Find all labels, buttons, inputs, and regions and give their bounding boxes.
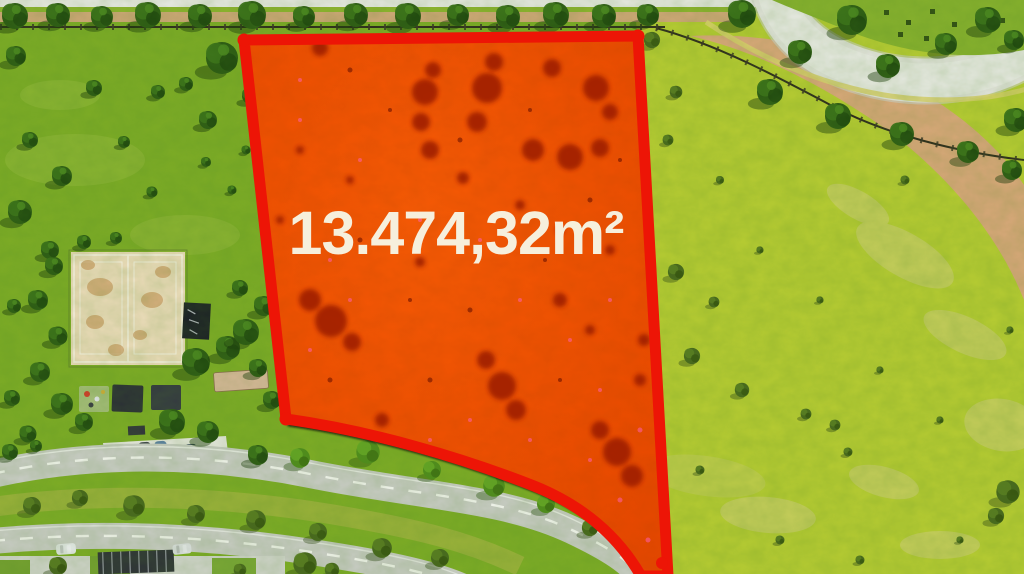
plot-corner	[280, 413, 293, 426]
aerial-scene: 13.474,32m²	[0, 0, 1024, 574]
aerial-photo: 13.474,32m²	[0, 0, 1024, 574]
area-label: 13.474,32m²	[289, 199, 625, 267]
plot-corner	[632, 30, 645, 43]
plot-corner	[656, 557, 668, 569]
plot-corner	[238, 34, 251, 47]
